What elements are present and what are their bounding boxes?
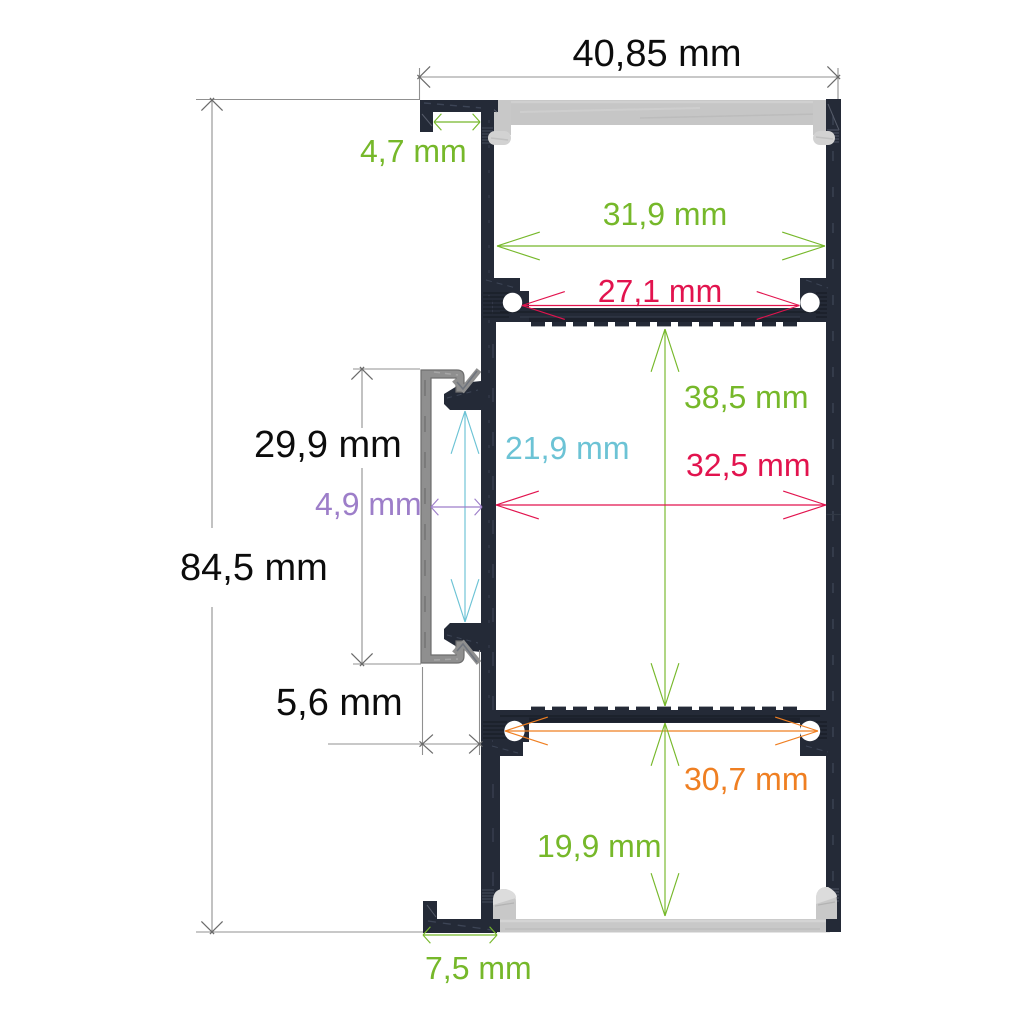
svg-text:21,9 mm: 21,9 mm <box>505 430 629 466</box>
svg-text:5,6 mm: 5,6 mm <box>276 682 403 724</box>
svg-text:31,9 mm: 31,9 mm <box>603 196 727 232</box>
svg-text:4,7 mm: 4,7 mm <box>360 133 467 169</box>
svg-text:32,5 mm: 32,5 mm <box>686 447 810 483</box>
svg-text:84,5 mm: 84,5 mm <box>180 547 328 589</box>
svg-text:4,9 mm: 4,9 mm <box>315 486 422 522</box>
svg-text:29,9 mm: 29,9 mm <box>254 424 402 466</box>
svg-text:27,1 mm: 27,1 mm <box>598 273 722 309</box>
svg-text:40,85 mm: 40,85 mm <box>573 33 742 75</box>
svg-text:7,5 mm: 7,5 mm <box>425 950 532 986</box>
svg-text:38,5 mm: 38,5 mm <box>684 379 808 415</box>
svg-text:19,9 mm: 19,9 mm <box>537 828 661 864</box>
svg-text:30,7 mm: 30,7 mm <box>684 761 808 797</box>
